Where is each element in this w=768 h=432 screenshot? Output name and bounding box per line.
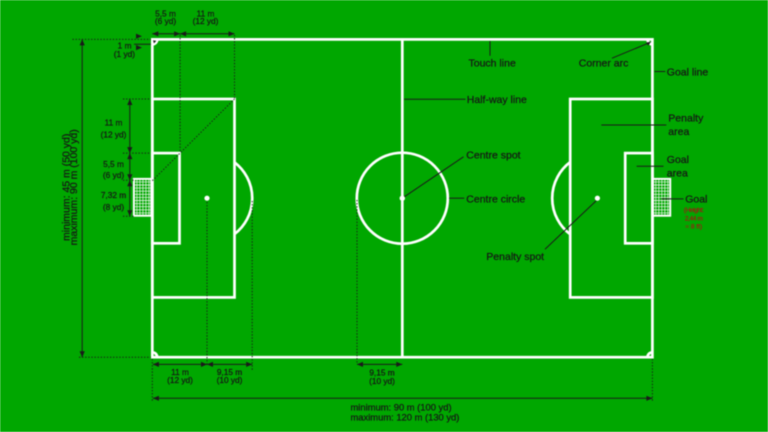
svg-text:(6 yd): (6 yd) xyxy=(155,16,176,26)
svg-text:area: area xyxy=(667,167,688,179)
svg-text:Corner arc: Corner arc xyxy=(579,57,629,69)
svg-text:(8 yd): (8 yd) xyxy=(103,202,124,212)
svg-text:Touch line: Touch line xyxy=(469,57,516,69)
svg-text:Half-way line: Half-way line xyxy=(467,94,527,106)
svg-text:(12 yd): (12 yd) xyxy=(101,130,127,140)
svg-text:(12 yd): (12 yd) xyxy=(193,16,219,26)
svg-text:(10 yd): (10 yd) xyxy=(217,375,243,385)
svg-text:Centre spot: Centre spot xyxy=(466,150,520,162)
svg-text:Goal: Goal xyxy=(685,194,707,206)
svg-text:2,44 m: 2,44 m xyxy=(685,215,703,222)
svg-text:11 m: 11 m xyxy=(105,117,123,127)
svg-text:= 8 ft): = 8 ft) xyxy=(685,223,702,230)
svg-text:7,32 m: 7,32 m xyxy=(101,190,126,200)
svg-text:(6 yd): (6 yd) xyxy=(103,170,124,180)
svg-text:area: area xyxy=(668,126,689,138)
svg-text:5,5 m: 5,5 m xyxy=(103,159,124,169)
svg-text:Centre circle: Centre circle xyxy=(466,194,525,206)
svg-text:Goal line: Goal line xyxy=(667,66,709,78)
svg-text:Penalty: Penalty xyxy=(668,112,704,124)
svg-text:maximum: 90 m (100 yd): maximum: 90 m (100 yd) xyxy=(68,129,80,245)
svg-text:(10 yd): (10 yd) xyxy=(369,376,395,386)
svg-text:Goal: Goal xyxy=(667,154,689,166)
svg-text:Penalty spot: Penalty spot xyxy=(486,251,544,263)
svg-text:maximum: 120 m (130 yd): maximum: 120 m (130 yd) xyxy=(351,412,460,423)
svg-text:(12 yd): (12 yd) xyxy=(167,375,193,385)
svg-text:(1 yd): (1 yd) xyxy=(114,49,135,59)
svg-text:(Height:: (Height: xyxy=(684,207,704,214)
